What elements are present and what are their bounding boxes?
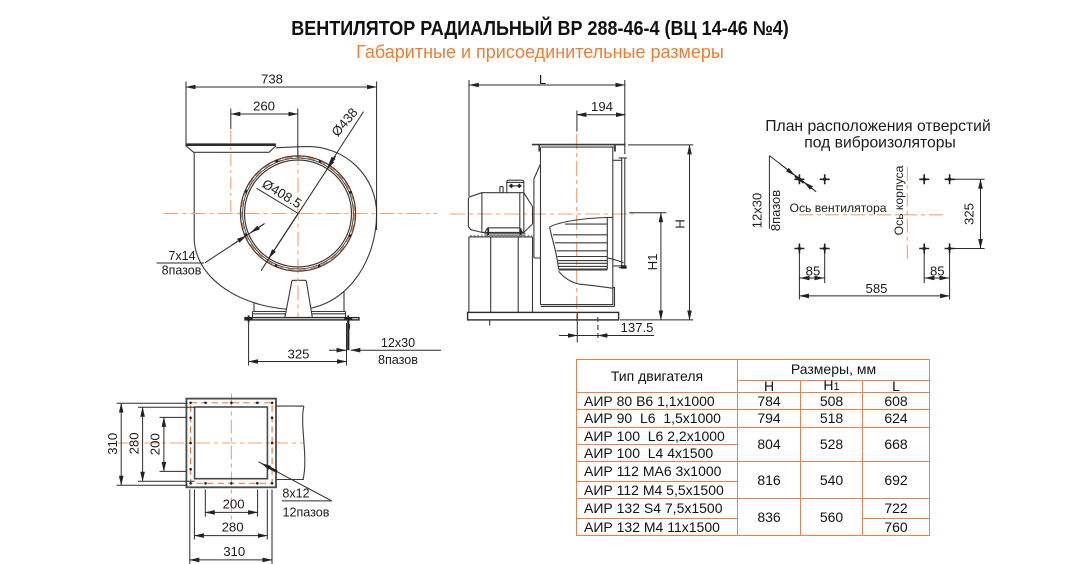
svg-text:8пазов: 8пазов (162, 263, 202, 277)
svg-text:Ø438: Ø438 (328, 105, 360, 139)
svg-text:200: 200 (148, 433, 163, 455)
svg-text:H1: H1 (645, 254, 660, 271)
svg-text:585: 585 (865, 281, 887, 296)
svg-text:8x12: 8x12 (282, 486, 309, 500)
svg-text:260: 260 (253, 98, 275, 113)
svg-text:8пазов: 8пазов (768, 190, 783, 231)
svg-text:738: 738 (261, 72, 283, 87)
svg-text:310: 310 (223, 544, 245, 559)
svg-text:Ось вентилятора: Ось вентилятора (789, 201, 886, 215)
svg-text:280: 280 (222, 520, 244, 535)
svg-text:7x14: 7x14 (168, 249, 195, 263)
svg-text:12x30: 12x30 (750, 193, 765, 228)
svg-text:325: 325 (287, 346, 309, 361)
svg-text:310: 310 (105, 433, 120, 455)
svg-text:325: 325 (962, 203, 977, 225)
svg-text:под виброизоляторы: под виброизоляторы (804, 135, 955, 152)
svg-text:L: L (539, 72, 546, 87)
svg-text:194: 194 (591, 99, 613, 114)
svg-text:Ось корпуса: Ось корпуса (892, 165, 906, 235)
svg-text:12x30: 12x30 (381, 336, 415, 350)
svg-text:85: 85 (806, 264, 821, 279)
svg-text:8пазов: 8пазов (378, 353, 418, 367)
svg-text:12пазов: 12пазов (282, 506, 329, 520)
svg-text:85: 85 (930, 264, 945, 279)
svg-text:H: H (673, 219, 688, 229)
svg-text:280: 280 (126, 432, 141, 454)
svg-text:200: 200 (223, 496, 245, 511)
svg-text:План расположения отверстий: План расположения отверстий (765, 118, 990, 135)
svg-text:137.5: 137.5 (620, 320, 653, 335)
